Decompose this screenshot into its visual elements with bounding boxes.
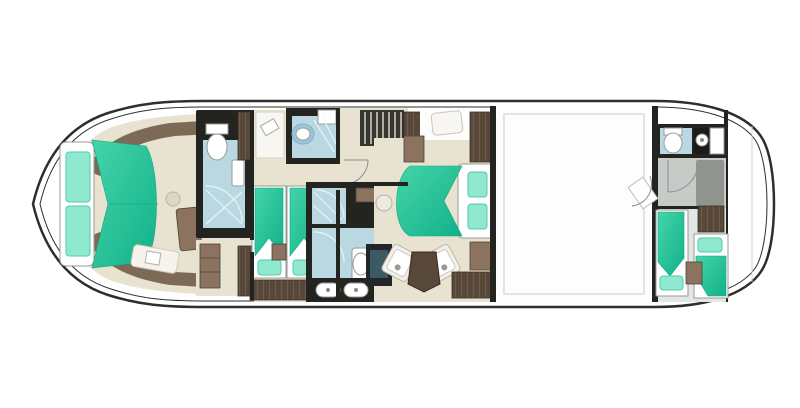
crew-wall-lower	[656, 206, 698, 209]
wall-forward-lower	[250, 252, 254, 300]
crew-toilet	[664, 133, 682, 153]
basin-drain	[354, 288, 358, 292]
wall-twin-corridor-top	[336, 108, 340, 158]
crew-pillow-left	[660, 276, 683, 290]
basin-drain	[700, 138, 704, 142]
forward-toilet	[207, 134, 227, 160]
wall-twin-corridor-bottom	[336, 190, 340, 302]
master-stool	[376, 195, 392, 211]
forward-head-cabinet	[232, 160, 244, 186]
twin-pillow-left	[258, 260, 281, 275]
engine-room	[496, 106, 658, 302]
yacht-floor-plan	[0, 0, 800, 408]
master-seat	[431, 110, 463, 135]
master-cabinet-top	[404, 136, 424, 162]
wall-master-engine	[490, 106, 496, 302]
bow-stool	[166, 192, 180, 206]
wall-forward	[250, 110, 254, 240]
crew-cabin	[656, 124, 728, 302]
master-wardrobe-bottom	[452, 272, 492, 298]
twin-nightstand	[272, 244, 286, 260]
master-pillow-top	[468, 172, 487, 197]
crew-wall-mid	[656, 155, 726, 158]
bow-pillow-top	[66, 152, 90, 202]
crew-pillow-right	[698, 238, 722, 252]
crew-cabinet	[698, 206, 724, 232]
crew-counter	[710, 128, 724, 154]
twin-head	[286, 108, 342, 164]
wall-corridor-bottom	[336, 182, 408, 186]
twin-head-counter	[318, 110, 336, 124]
forward-toilet-tank	[206, 124, 228, 134]
master-wardrobe-top	[470, 112, 492, 162]
engine-room-floor	[496, 106, 652, 302]
crew-nightstand	[686, 262, 702, 284]
bow-bench-cushion	[145, 251, 161, 265]
basin-drain	[326, 288, 330, 292]
twin-washbasin	[296, 128, 310, 140]
crew-counter-berth	[696, 160, 724, 206]
master-table	[408, 252, 440, 292]
floor-plan-canvas	[0, 0, 800, 408]
bow-pillow-bottom	[66, 206, 90, 256]
twin-wardrobe-top	[238, 112, 252, 160]
twin-desk	[256, 112, 284, 158]
master-pillow-bottom	[468, 204, 487, 229]
master-cabinet-bottom	[470, 242, 492, 270]
forward-closet-wardrobe	[200, 244, 220, 288]
